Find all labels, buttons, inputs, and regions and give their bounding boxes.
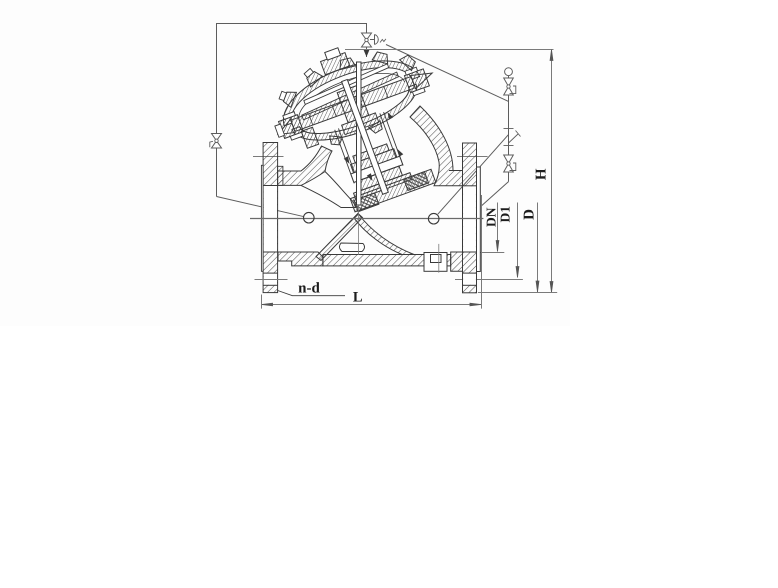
svg-text:D1: D1 (498, 206, 513, 223)
svg-text:DN: DN (483, 207, 498, 227)
svg-text:n-d: n-d (298, 281, 320, 297)
svg-text:D: D (522, 209, 538, 220)
svg-text:H: H (534, 168, 550, 180)
svg-text:L: L (353, 290, 363, 306)
